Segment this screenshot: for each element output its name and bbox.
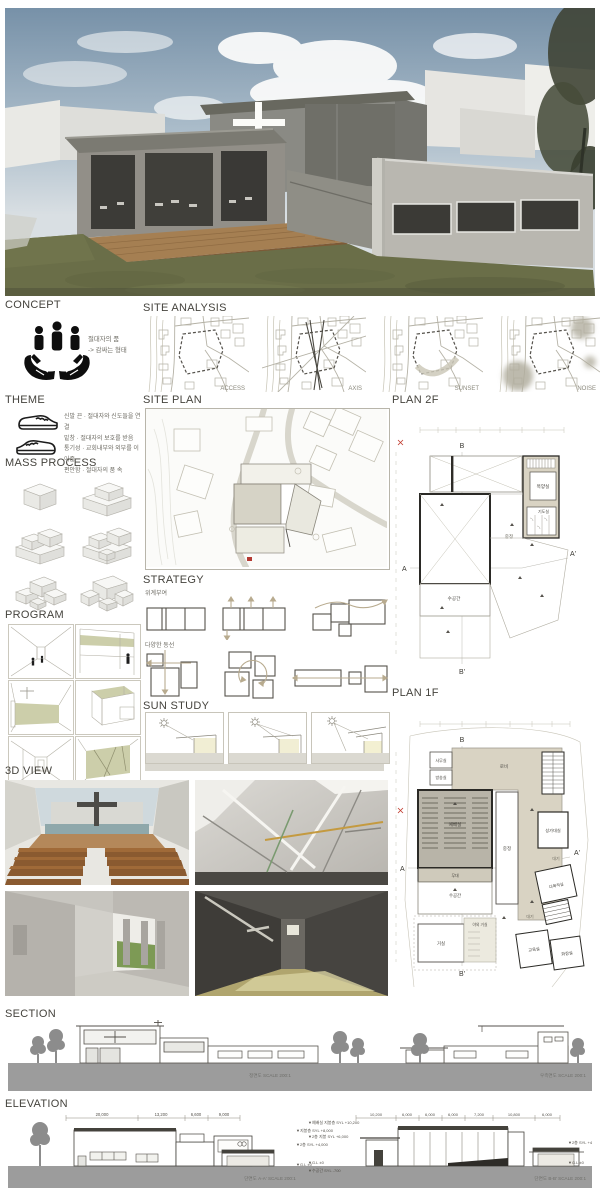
sun-study-ground (145, 764, 384, 771)
map-sunset: SUNSET (379, 316, 483, 392)
mass-step-5 (8, 568, 72, 612)
section-drawing: 정면도 SCALE 200:1 우측면도 SCALE 200:1 (8, 1018, 592, 1096)
elev-level-right-3: ▼G.L ±0 (308, 1160, 325, 1165)
sun-icon (250, 717, 260, 727)
render-colonnade-courtyard (5, 891, 189, 996)
section-caption-right: 우측면도 SCALE 200:1 (540, 1072, 586, 1079)
plan2f-marker-b: B (460, 443, 465, 450)
site-analysis-maps: ACCESS AXIS SUNSET NOISE (145, 316, 600, 392)
elev-level-right-2: ▼2층 지붕 SYL +6,000 (308, 1133, 349, 1139)
plan1f-room-water: 수공간 (449, 892, 461, 899)
elevation-caption-left: 단면도 A-A' SCALE 200:1 (244, 1175, 296, 1181)
plan2f-room-prayer: 기도실 (538, 508, 549, 514)
plan1f-room-office: 사무실 (435, 757, 446, 763)
render-light-cross-wall (195, 780, 388, 885)
mass-step-1 (8, 474, 72, 518)
plan1f-room-stage: 무대 (451, 872, 459, 878)
elev-dim-right-1: 10,200 (370, 1112, 383, 1117)
elevation-drawing: 20,000 13,200 6,600 9,000 (8, 1108, 592, 1198)
map-noise: NOISE (496, 316, 600, 392)
plan2f-room-water: 수공간 (448, 595, 461, 602)
elev-level-right-4: ▼수공간 SYL -700 (308, 1167, 341, 1173)
mass-process-grid (8, 474, 139, 612)
sun-study-1 (145, 712, 224, 764)
program-sketch-2 (75, 624, 141, 679)
site-plan-drawing (145, 408, 390, 570)
elev-dim-left-2: 13,200 (155, 1112, 168, 1117)
map-access: ACCESS (145, 316, 249, 392)
elev-dim-right-5: 7,200 (474, 1112, 485, 1117)
sun-study-heading: SUN STUDY (143, 700, 209, 712)
program-sketch-3 (8, 680, 74, 735)
program-heading: PROGRAM (5, 609, 64, 621)
plan2f-marker-a2: A' (570, 551, 576, 558)
mass-step-4 (75, 521, 139, 565)
plan1f-room-living: 거실 (437, 940, 445, 947)
sun-icon (159, 718, 169, 728)
plan1f-room-courtyard: 중정 (503, 845, 511, 851)
strategy-row1 (145, 596, 390, 640)
sun-icon (327, 716, 337, 726)
plan2f-marker-a: A (402, 566, 407, 573)
plan-2f-heading: PLAN 2F (392, 394, 439, 406)
theme-line-2: 밑창 · 절대자의 보호를 받음 (64, 434, 142, 445)
mass-step-3 (8, 521, 72, 565)
plan1f-marker-a: A (400, 866, 405, 873)
section-caption-left: 정면도 SCALE 200:1 (249, 1072, 291, 1078)
map-sunset-label: SUNSET (455, 386, 480, 392)
plan-2f-drawing: B B' A A' (392, 408, 597, 686)
site-analysis-heading: SITE ANALYSIS (143, 302, 227, 314)
site-plan-heading: SITE PLAN (143, 394, 202, 406)
plan-1f-heading: PLAN 1F (392, 687, 439, 699)
render-worship-interior (5, 780, 189, 885)
plan1f-room-waiting2: 대기 (526, 913, 534, 919)
render-dark-corridor (195, 891, 388, 996)
mass-process-heading: MASS PROCESS (5, 457, 97, 469)
elev-dim-right-7: 6,000 (542, 1112, 553, 1117)
elev-dim-right-2: 6,000 (402, 1112, 413, 1117)
presentation-board: CONCEPT 절대자의 품 -> 감싸는 형태 SITE ANALYSIS A… (0, 0, 600, 1200)
map-access-label: ACCESS (220, 386, 245, 392)
map-axis-label: AXIS (348, 386, 362, 392)
mass-step-2 (75, 474, 139, 518)
plan-1f-drawing: B B' A A' 로비 사무실 방송실 (392, 700, 597, 988)
plan1f-room-lobby: 로비 (500, 763, 508, 770)
concept-caption-line2: -> 감싸는 형태 (88, 346, 127, 357)
elevation-tree (30, 1122, 50, 1166)
elev-dim-right-3: 6,000 (425, 1112, 436, 1117)
elevation-caption-right: 단면도 B-B' SCALE 200:1 (534, 1175, 586, 1181)
elev-dim-right-6: 10,800 (508, 1112, 521, 1117)
elev-dim-left-1: 20,000 (96, 1112, 109, 1117)
plan1f-room-broadcast: 방송실 (435, 774, 446, 780)
concept-caption: 절대자의 품 -> 감싸는 형태 (88, 335, 127, 356)
elev-level-left-1: ▼지붕층 SYL +8,000 (296, 1127, 334, 1133)
elev-dim-left-4: 9,000 (219, 1112, 230, 1117)
concept-caption-line1: 절대자의 품 (88, 335, 127, 346)
plan1f-marker-b2: B' (459, 971, 465, 978)
sun-study-2 (228, 712, 307, 764)
map-axis: AXIS (262, 316, 366, 392)
view-3d-heading: 3D VIEW (5, 765, 52, 777)
plan1f-room-outdoor: 야외 거실 (472, 922, 488, 927)
people-in-hands-icon (22, 320, 92, 384)
strategy-row2 (145, 648, 390, 700)
map-noise-label: NOISE (577, 386, 596, 392)
elev-dim-right-4: 6,000 (448, 1112, 459, 1117)
strategy-heading: STRATEGY (143, 574, 204, 586)
elev-level-far-1: ▼2층 SYL +4,000 (568, 1139, 592, 1145)
program-sketch-4 (75, 680, 141, 735)
right-wing (377, 159, 593, 268)
plan1f-marker-a2: A' (574, 850, 580, 857)
elev-level-left-2: ▼2층 SYL +4,000 (296, 1141, 329, 1147)
cafe-pavilion (65, 129, 287, 238)
exterior-render (5, 8, 595, 296)
elev-dim-left-3: 6,600 (191, 1112, 202, 1117)
mass-step-6 (75, 568, 139, 612)
program-sketch-1 (8, 624, 74, 679)
elev-level-far-2: ▼G.L ±0 (568, 1160, 585, 1165)
plan1f-room-waiting1: 대기 (552, 855, 560, 861)
concept-heading: CONCEPT (5, 299, 61, 311)
elev-level-right-1: ▼예배실 지붕층 SYL +10,200 (308, 1119, 360, 1125)
plan1f-marker-b: B (460, 737, 465, 744)
theme-line-1: 신발 끈 · 절대자와 신도들을 연결 (64, 412, 142, 434)
sneakers-icon (12, 408, 62, 458)
view-3d-grid (5, 780, 388, 996)
plan2f-marker-b2: B' (459, 669, 465, 676)
sun-study-3 (311, 712, 390, 764)
theme-heading: THEME (5, 394, 45, 406)
exterior-render-graphic (5, 8, 595, 296)
plan1f-room-worship: 예배실 (449, 821, 462, 828)
plan2f-room-pastor: 목양실 (537, 483, 550, 490)
plan1f-room-choir: 성가대실 (545, 827, 561, 834)
sun-study-row (145, 712, 390, 764)
